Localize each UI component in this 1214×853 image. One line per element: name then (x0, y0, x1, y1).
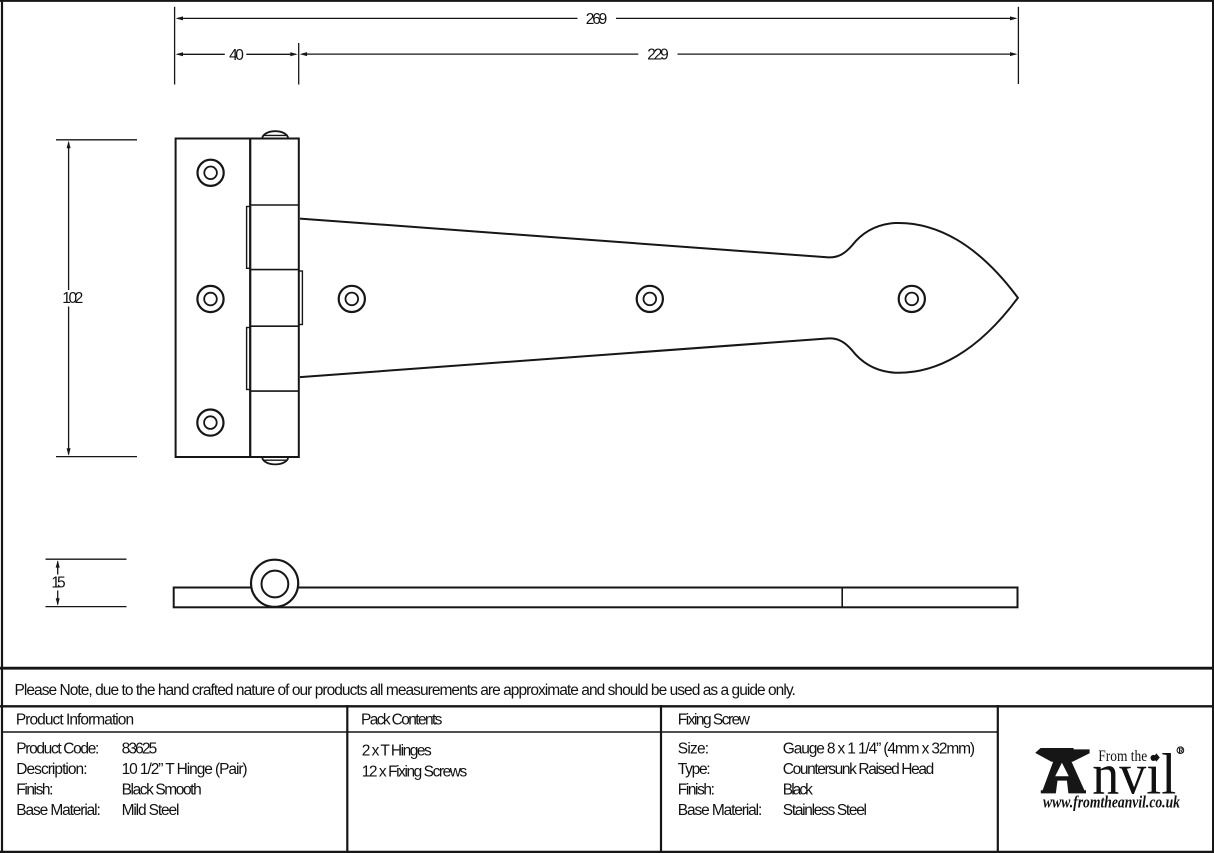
svg-text:Finish:: Finish: (678, 782, 715, 799)
svg-text:Fixing Screw: Fixing Screw (678, 711, 751, 728)
svg-text:Countersunk Raised Head: Countersunk Raised Head (783, 761, 934, 778)
svg-text:R: R (1178, 746, 1184, 755)
svg-text:40: 40 (229, 47, 244, 64)
svg-text:Finish:: Finish: (16, 782, 53, 799)
svg-text:Size:: Size: (678, 741, 709, 758)
svg-text:83625: 83625 (122, 741, 158, 758)
svg-text:Pack Contents: Pack Contents (361, 711, 443, 728)
svg-text:2 x T Hinges: 2 x T Hinges (362, 743, 432, 760)
svg-text:Product Code:: Product Code: (16, 741, 99, 758)
svg-text:Base Material:: Base Material: (678, 802, 763, 819)
svg-text:15: 15 (51, 575, 65, 592)
svg-text:10 1/2” T Hinge (Pair): 10 1/2” T Hinge (Pair) (122, 761, 248, 778)
svg-text:Description:: Description: (16, 761, 87, 778)
svg-text:Black Smooth: Black Smooth (122, 782, 202, 799)
svg-text:Base Material:: Base Material: (16, 802, 101, 819)
svg-text:Black: Black (783, 782, 813, 799)
svg-text:269: 269 (586, 11, 608, 28)
svg-text:www.fromtheanvil.co.uk: www.fromtheanvil.co.uk (1043, 793, 1180, 812)
svg-text:Gauge 8 x 1 1/4” (4mm x 32mm): Gauge 8 x 1 1/4” (4mm x 32mm) (783, 741, 975, 758)
svg-text:Type:: Type: (678, 761, 711, 778)
svg-text:Please Note, due to the hand c: Please Note, due to the hand crafted nat… (15, 682, 796, 699)
svg-text:Stainless Steel: Stainless Steel (783, 802, 867, 819)
svg-text:Mild Steel: Mild Steel (122, 802, 180, 819)
svg-text:229: 229 (647, 47, 669, 64)
svg-text:12 x Fixing Screws: 12 x Fixing Screws (362, 764, 468, 781)
svg-text:Product Information: Product Information (16, 711, 134, 728)
svg-text:102: 102 (62, 290, 83, 307)
